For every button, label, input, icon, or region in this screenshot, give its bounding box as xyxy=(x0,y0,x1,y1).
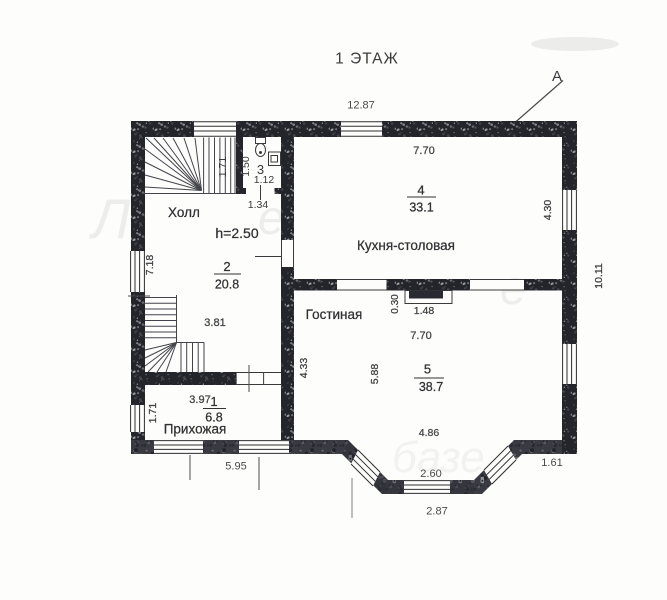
svg-text:38.7: 38.7 xyxy=(419,380,443,394)
svg-text:4.86: 4.86 xyxy=(419,427,440,439)
svg-text:5: 5 xyxy=(424,362,431,377)
svg-text:20.8: 20.8 xyxy=(215,278,239,292)
svg-text:Кухня-столовая: Кухня-столовая xyxy=(357,238,455,253)
svg-text:1.34: 1.34 xyxy=(248,199,269,211)
svg-text:12.87: 12.87 xyxy=(347,100,375,112)
svg-text:3.81: 3.81 xyxy=(204,317,225,329)
svg-text:1 ЭТАЖ: 1 ЭТАЖ xyxy=(335,51,399,68)
svg-text:3.97: 3.97 xyxy=(189,394,210,406)
svg-text:10.11: 10.11 xyxy=(593,263,605,289)
svg-text:7.70: 7.70 xyxy=(410,330,431,342)
svg-text:5.88: 5.88 xyxy=(369,364,381,385)
svg-text:1.12: 1.12 xyxy=(254,174,275,186)
svg-text:1.50: 1.50 xyxy=(240,156,252,177)
svg-text:1.48: 1.48 xyxy=(414,305,435,317)
svg-text:4.33: 4.33 xyxy=(298,358,310,379)
svg-text:2: 2 xyxy=(223,259,230,274)
svg-text:h=2.50: h=2.50 xyxy=(215,225,258,241)
svg-text:Л: Л xyxy=(89,187,131,250)
svg-text:4: 4 xyxy=(417,183,424,198)
svg-text:1.71: 1.71 xyxy=(217,157,229,178)
svg-text:Холл: Холл xyxy=(168,205,200,220)
svg-text:Прихожая: Прихожая xyxy=(164,422,227,437)
svg-text:А: А xyxy=(552,68,562,85)
svg-text:1: 1 xyxy=(210,394,217,409)
svg-text:5.95: 5.95 xyxy=(225,461,246,473)
svg-text:4.30: 4.30 xyxy=(542,200,554,221)
svg-text:33.1: 33.1 xyxy=(409,201,433,215)
svg-text:2.60: 2.60 xyxy=(420,468,441,480)
svg-text:7.18: 7.18 xyxy=(144,255,156,276)
svg-text:Гостиная: Гостиная xyxy=(306,307,363,322)
svg-text:0.30: 0.30 xyxy=(390,294,401,314)
svg-text:7.70: 7.70 xyxy=(413,145,434,157)
svg-text:2.87: 2.87 xyxy=(426,506,447,518)
svg-text:1.71: 1.71 xyxy=(147,403,159,424)
svg-text:1.61: 1.61 xyxy=(541,457,562,469)
